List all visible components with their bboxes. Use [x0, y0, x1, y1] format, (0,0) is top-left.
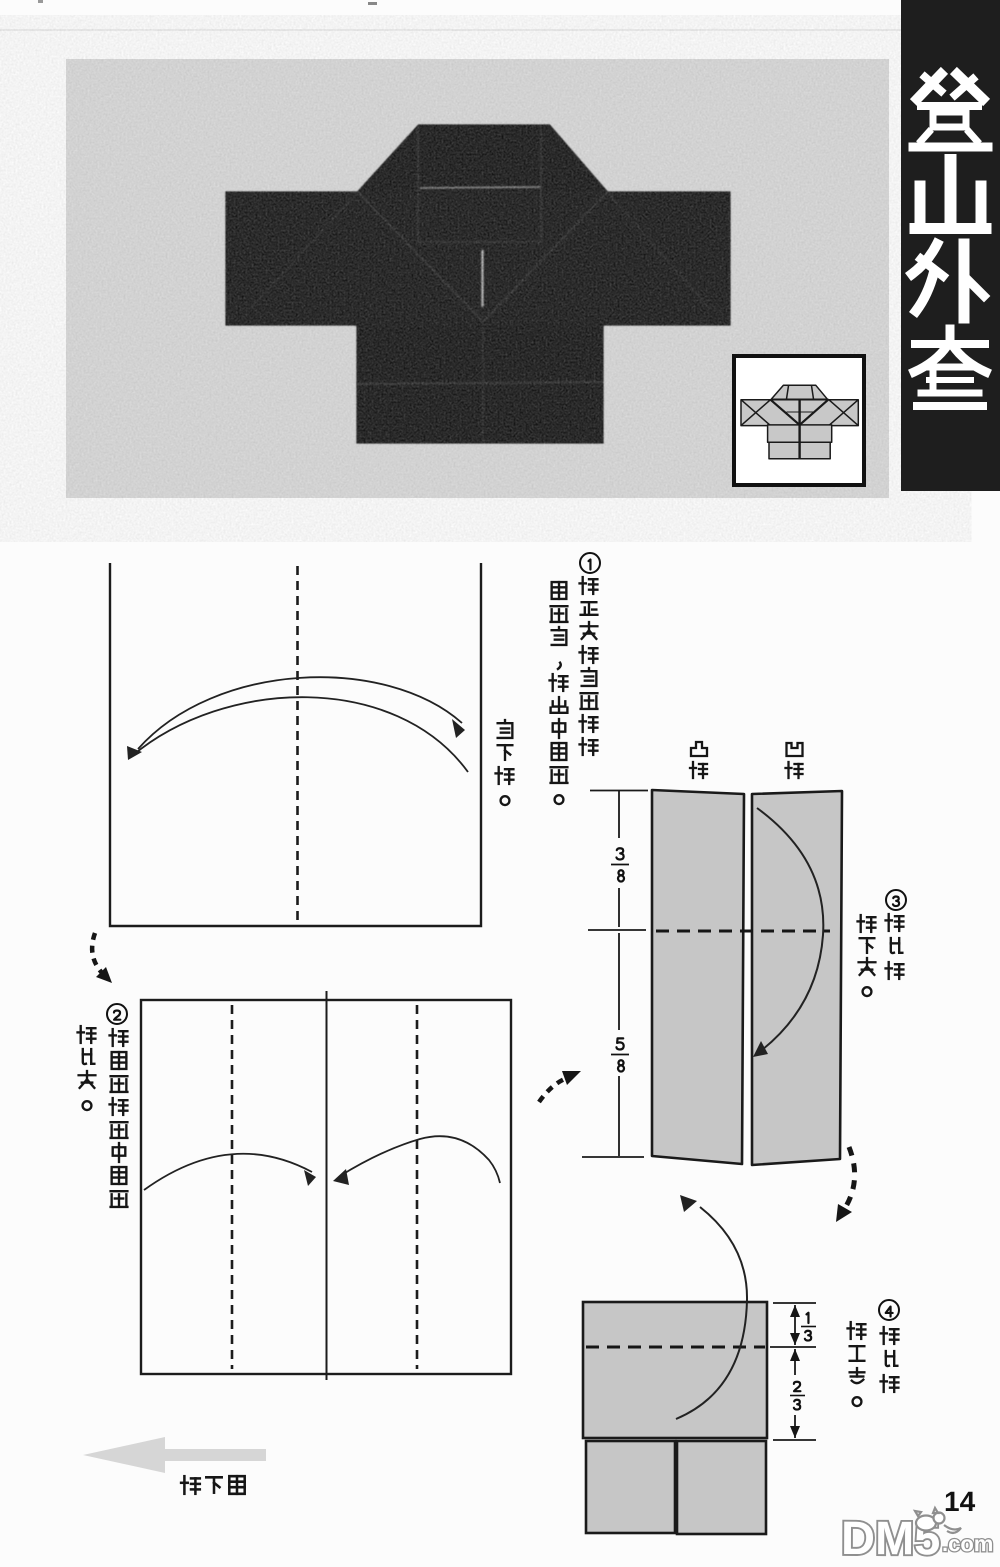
svg-text:14: 14 — [944, 1486, 976, 1517]
svg-text:.com: .com — [942, 1531, 993, 1556]
